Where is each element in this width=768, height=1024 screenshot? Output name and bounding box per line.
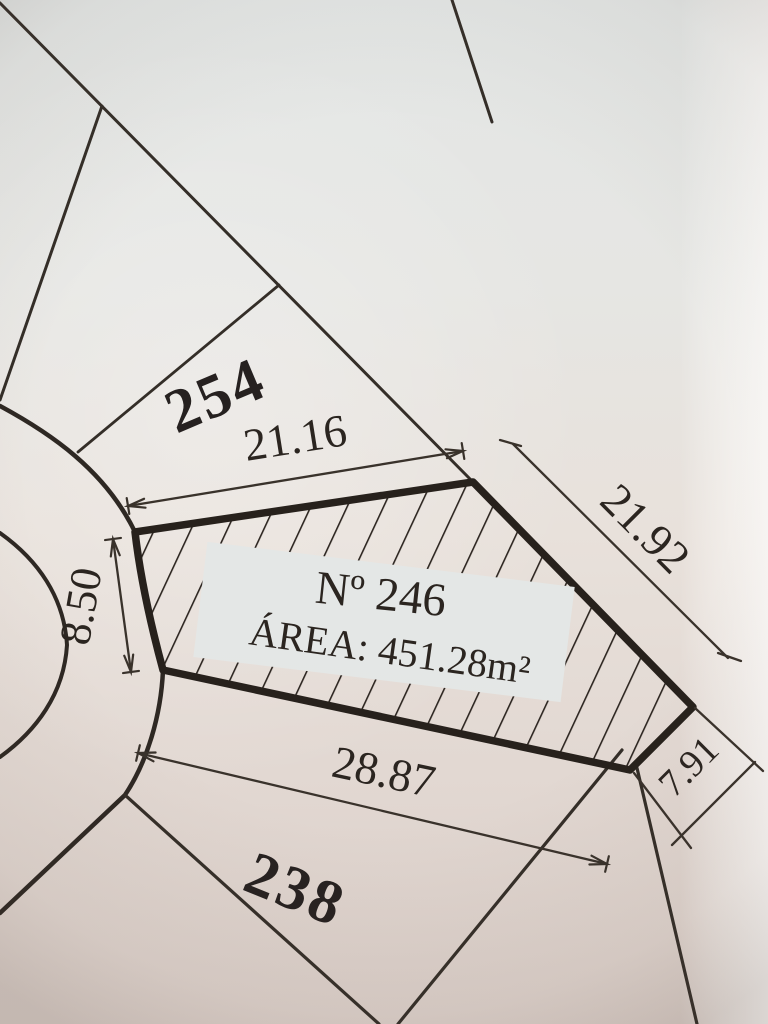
survey-plan-canvas: 254 21.16 21.92 8.50 Nº 246 ÁREA: 451.28… <box>0 0 768 1024</box>
photo-vignette <box>0 0 768 1024</box>
photographed-survey-plan: 254 21.16 21.92 8.50 Nº 246 ÁREA: 451.28… <box>0 0 768 1024</box>
